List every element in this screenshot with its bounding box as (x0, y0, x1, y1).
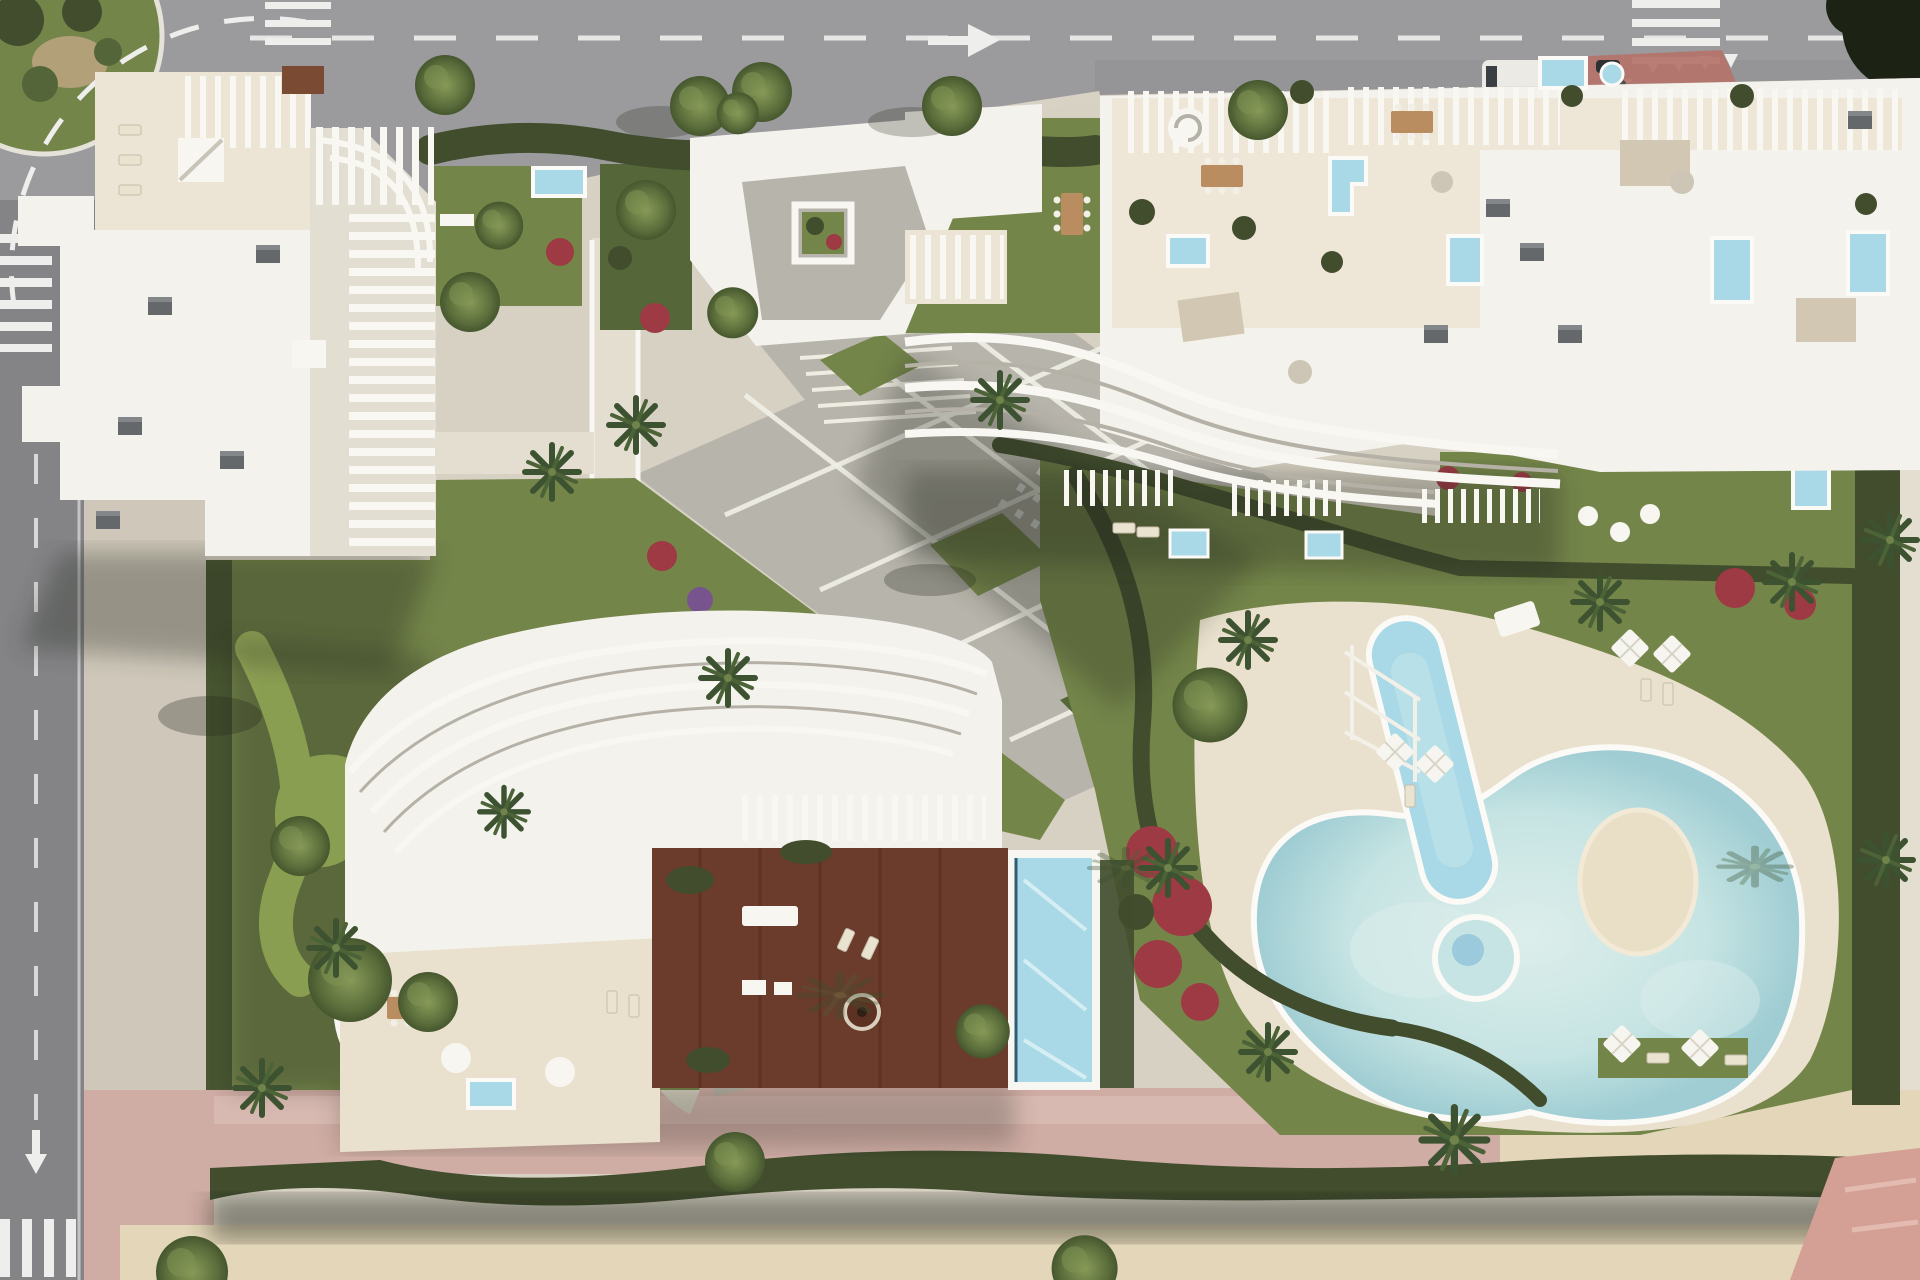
palm-tree (309, 921, 363, 975)
b3-lap-pool (1008, 850, 1100, 1090)
pool-shimmer (1640, 960, 1760, 1040)
flower-mass (1181, 983, 1219, 1021)
shade-tree (398, 972, 458, 1032)
ac-unit (148, 297, 172, 315)
roof-dining-table (1391, 104, 1433, 141)
shade-tree (922, 76, 982, 136)
aerial-render (0, 0, 1920, 1280)
palm-tree (1765, 555, 1819, 609)
round-parasol (545, 1057, 575, 1087)
b1-balcony-stub (22, 386, 94, 442)
island-cactus (94, 38, 122, 66)
pool-beach-island (1580, 810, 1696, 954)
island-cactus (22, 66, 58, 102)
shade-tree (1228, 80, 1288, 140)
ac-unit (256, 245, 280, 263)
shade-tree (440, 272, 500, 332)
palm-tree (973, 373, 1027, 427)
ac-unit (96, 511, 120, 529)
b1-stair-bulkhead (178, 138, 224, 182)
deck-sofa (742, 906, 798, 926)
sun-lounger (1641, 679, 1651, 701)
flower-bed-purple (687, 587, 713, 613)
planter-flowers (826, 234, 842, 250)
poolside-hedge (1100, 860, 1134, 1088)
terrace-plant (1730, 84, 1754, 108)
sun-lounger (1663, 683, 1673, 705)
sun-lounger (1647, 1053, 1669, 1063)
palm-tree (701, 651, 755, 705)
ac-unit (1558, 325, 1582, 343)
ac-unit (1486, 199, 1510, 217)
terrace-plant (1129, 199, 1155, 225)
terrace-plant (1290, 80, 1314, 104)
sun-lounger (1725, 1055, 1747, 1065)
flower-bed (640, 303, 670, 333)
planter-shrub (806, 217, 824, 235)
garden-bench (440, 214, 474, 226)
promenade-tree (705, 1132, 765, 1192)
ac-unit (118, 417, 142, 435)
deck-seat (774, 982, 792, 995)
terrace-plant (1855, 193, 1877, 215)
ac-unit (1424, 325, 1448, 343)
sun-lounger (607, 991, 617, 1013)
round-daybed (1670, 170, 1694, 194)
shade-tree (717, 92, 759, 134)
round-daybed (1288, 360, 1312, 384)
b3-wood-deck (652, 840, 1008, 1088)
flower-bed (647, 541, 677, 571)
deck-planter (666, 866, 714, 894)
ac-unit (1520, 243, 1544, 261)
terrace-plant (1321, 251, 1343, 273)
ac-unit (220, 451, 244, 469)
shade-tree (415, 55, 475, 115)
round-table (1578, 506, 1598, 526)
promenade-tree (956, 1004, 1010, 1058)
round-table (1640, 504, 1660, 524)
flower-bed (546, 238, 574, 266)
palm-tree (1573, 575, 1627, 629)
roof-dining-table (1201, 158, 1243, 195)
sun-lounger (119, 185, 141, 195)
b1-roof-box (292, 340, 326, 368)
shade-tree (270, 816, 330, 876)
b1-wood-seat (282, 66, 324, 94)
shrub (608, 246, 632, 270)
shade-tree (707, 287, 758, 338)
tree-shadow (884, 564, 976, 596)
flower-mass (1715, 568, 1755, 608)
terrace-plant (1232, 216, 1256, 240)
terrace-plant (1561, 85, 1583, 107)
palm-tree (1221, 613, 1275, 667)
sun-lounger (119, 125, 141, 135)
round-table (1610, 522, 1630, 542)
sun-lounger (119, 155, 141, 165)
deck-planter (780, 840, 832, 864)
b1-balcony-stub (18, 196, 94, 246)
palm-tree (235, 1061, 289, 1115)
palm-tree (1859, 833, 1913, 887)
sun-lounger (629, 995, 639, 1017)
palm-tree (525, 445, 579, 499)
palm-tree (609, 398, 663, 452)
palm-tree (480, 788, 529, 837)
deck-planter (686, 1047, 730, 1073)
sun-lounger (1137, 527, 1159, 537)
hedge-shadow (210, 1196, 1920, 1240)
palm-tree (1422, 1108, 1487, 1173)
shade-tree (616, 180, 676, 240)
deck-seat (742, 980, 766, 995)
sun-lounger (1113, 523, 1135, 533)
terrace-rug (1796, 298, 1856, 342)
palm-tree (1863, 513, 1917, 567)
scene-canvas (0, 0, 1920, 1280)
sun-lounger (1405, 785, 1415, 807)
garden-dining-table (1054, 193, 1091, 235)
palm-tree (1241, 1025, 1295, 1079)
round-daybed (1431, 171, 1453, 193)
flower-mass (1134, 940, 1182, 988)
lawn-pool (533, 168, 585, 196)
ac-unit (1848, 111, 1872, 129)
round-parasol (441, 1043, 471, 1073)
b2-spiral-stair (1168, 108, 1208, 148)
shade-tree (475, 202, 523, 250)
terrace-rug (1177, 292, 1244, 342)
tree-shadow (158, 696, 262, 736)
kids-pool-deep (1452, 934, 1484, 966)
shade-tree (1173, 668, 1248, 743)
terrace-pool (468, 1080, 514, 1108)
